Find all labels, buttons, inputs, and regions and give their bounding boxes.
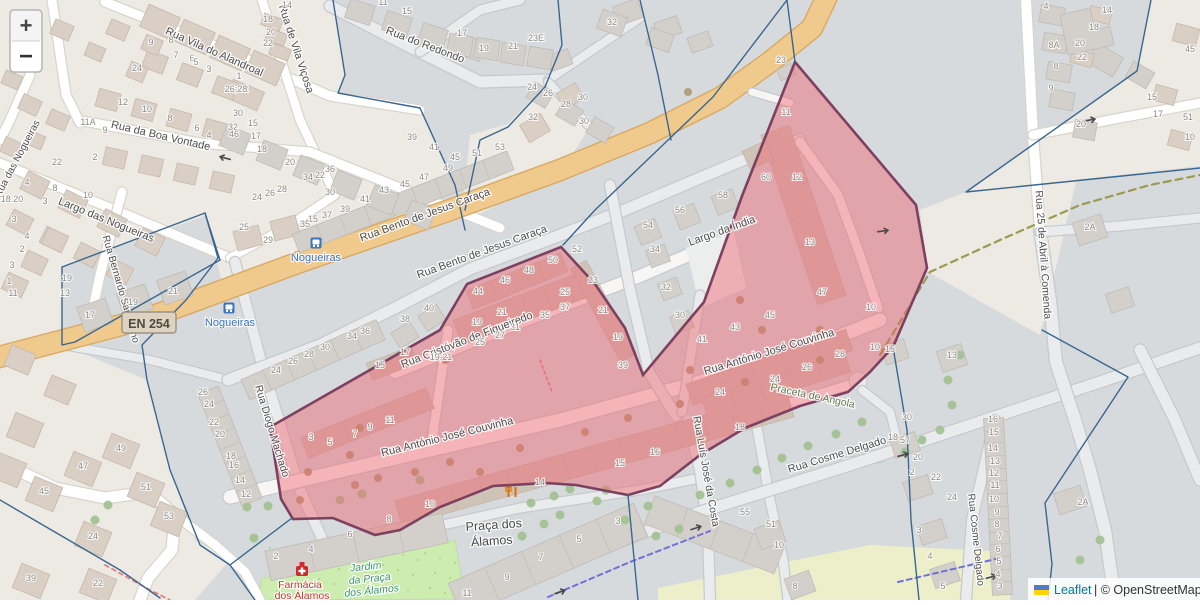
svg-text:43: 43: [730, 322, 740, 332]
svg-text:25: 25: [560, 287, 570, 297]
svg-text:22: 22: [52, 157, 62, 167]
svg-text:12: 12: [241, 489, 251, 499]
svg-text:15: 15: [885, 344, 895, 354]
svg-text:20: 20: [913, 452, 923, 462]
svg-text:7: 7: [997, 531, 1002, 541]
svg-text:3: 3: [9, 260, 14, 270]
svg-text:15: 15: [989, 427, 999, 437]
svg-text:6: 6: [194, 123, 199, 133]
svg-text:60: 60: [761, 172, 771, 182]
svg-text:36: 36: [360, 326, 370, 336]
svg-text:32: 32: [607, 17, 617, 27]
svg-text:8: 8: [994, 519, 999, 529]
svg-text:17: 17: [85, 310, 95, 320]
svg-text:24: 24: [770, 374, 780, 384]
svg-text:11: 11: [378, 0, 387, 7]
svg-text:14: 14: [1102, 5, 1112, 15]
svg-text:10: 10: [866, 302, 876, 312]
svg-text:26: 26: [288, 356, 298, 366]
svg-text:37: 37: [560, 302, 570, 312]
svg-text:57: 57: [900, 435, 910, 445]
svg-text:dos Álamos: dos Álamos: [275, 589, 330, 600]
svg-text:11: 11: [385, 415, 394, 425]
svg-text:51: 51: [472, 148, 482, 158]
svg-text:4: 4: [995, 569, 1000, 579]
svg-text:35: 35: [300, 219, 310, 229]
svg-text:41: 41: [429, 142, 439, 152]
svg-text:2: 2: [273, 551, 278, 561]
svg-text:11: 11: [8, 288, 17, 298]
svg-text:32: 32: [661, 282, 671, 292]
svg-text:17: 17: [457, 28, 467, 38]
svg-text:21: 21: [598, 305, 608, 315]
svg-text:43: 43: [379, 185, 389, 195]
svg-text:24: 24: [88, 531, 98, 541]
svg-text:41: 41: [697, 334, 707, 344]
svg-text:34: 34: [650, 244, 660, 254]
svg-text:21: 21: [168, 286, 178, 296]
svg-text:18: 18: [735, 422, 745, 432]
svg-text:3: 3: [615, 516, 620, 526]
svg-text:15: 15: [615, 458, 625, 468]
svg-text:5: 5: [193, 57, 198, 67]
svg-text:17: 17: [1153, 109, 1163, 119]
svg-text:2A: 2A: [1077, 497, 1088, 507]
svg-text:3: 3: [997, 581, 1002, 591]
svg-text:4: 4: [206, 130, 211, 140]
svg-text:47: 47: [817, 287, 827, 297]
svg-text:3: 3: [11, 214, 16, 224]
svg-text:8A: 8A: [1048, 40, 1059, 50]
svg-text:2: 2: [92, 152, 97, 162]
svg-text:53: 53: [495, 142, 505, 152]
svg-text:15: 15: [1147, 92, 1157, 102]
svg-text:47: 47: [78, 461, 88, 471]
svg-text:39: 39: [618, 360, 628, 370]
svg-text:35: 35: [540, 310, 550, 320]
svg-text:15: 15: [248, 118, 258, 128]
svg-text:18: 18: [263, 14, 273, 24]
svg-text:45: 45: [39, 486, 49, 496]
svg-text:2: 2: [19, 244, 24, 254]
svg-text:18: 18: [257, 144, 267, 154]
svg-text:34: 34: [303, 172, 313, 182]
svg-text:12: 12: [989, 468, 999, 478]
svg-text:2: 2: [909, 467, 914, 477]
svg-text:17: 17: [400, 347, 410, 357]
svg-text:50: 50: [548, 255, 558, 265]
svg-text:19: 19: [472, 317, 482, 327]
svg-text:4: 4: [1043, 1, 1048, 11]
svg-text:56: 56: [675, 205, 685, 215]
svg-text:48: 48: [524, 265, 534, 275]
svg-text:24: 24: [715, 387, 725, 397]
svg-text:19;21: 19;21: [430, 352, 453, 362]
svg-text:29: 29: [263, 235, 273, 245]
svg-text:Nogueiras: Nogueiras: [205, 317, 256, 329]
svg-text:11: 11: [781, 107, 790, 117]
svg-text:4: 4: [24, 231, 29, 241]
svg-text:8: 8: [386, 514, 391, 524]
svg-text:5: 5: [996, 556, 1001, 566]
svg-text:24: 24: [271, 365, 281, 375]
svg-text:11: 11: [462, 588, 471, 598]
svg-text:19: 19: [62, 273, 72, 283]
svg-text:46: 46: [500, 275, 510, 285]
svg-text:21: 21: [497, 307, 507, 317]
svg-text:21: 21: [508, 41, 518, 51]
svg-text:23: 23: [588, 275, 598, 285]
svg-text:19: 19: [128, 297, 138, 307]
svg-text:51: 51: [1183, 112, 1193, 122]
svg-text:19: 19: [613, 332, 623, 342]
svg-text:30: 30: [233, 108, 243, 118]
svg-text:22: 22: [931, 472, 941, 482]
svg-text:30: 30: [320, 342, 330, 352]
svg-text:Álamos: Álamos: [470, 532, 513, 550]
svg-text:4: 4: [927, 551, 932, 561]
svg-text:9: 9: [994, 507, 999, 517]
svg-text:13: 13: [60, 288, 70, 298]
svg-text:30: 30: [675, 310, 685, 320]
svg-text:52: 52: [572, 244, 582, 254]
svg-text:41: 41: [360, 194, 370, 204]
svg-text:10: 10: [142, 104, 152, 114]
svg-text:20: 20: [266, 27, 276, 37]
svg-text:49: 49: [443, 163, 453, 173]
svg-text:54: 54: [643, 220, 653, 230]
svg-text:30: 30: [578, 92, 588, 102]
svg-text:51: 51: [766, 519, 776, 529]
svg-text:EN 254: EN 254: [128, 317, 170, 331]
svg-text:46: 46: [229, 129, 239, 139]
svg-text:51: 51: [141, 482, 151, 492]
svg-text:27: 27: [495, 330, 505, 340]
svg-text:24: 24: [132, 63, 142, 73]
svg-text:45: 45: [450, 152, 460, 162]
svg-text:5: 5: [327, 437, 332, 447]
svg-text:37: 37: [322, 210, 332, 220]
svg-text:40: 40: [424, 303, 434, 313]
svg-text:45: 45: [400, 179, 410, 189]
svg-text:8: 8: [1053, 61, 1058, 71]
svg-text:36: 36: [325, 164, 335, 174]
svg-text:16: 16: [229, 460, 239, 470]
svg-text:22: 22: [315, 170, 325, 180]
svg-text:26;28: 26;28: [225, 84, 248, 94]
svg-text:12: 12: [792, 172, 802, 182]
svg-text:15: 15: [375, 360, 385, 370]
svg-text:30: 30: [902, 412, 912, 422]
svg-text:10: 10: [989, 494, 999, 504]
svg-text:12: 12: [118, 97, 128, 107]
svg-text:13: 13: [805, 237, 815, 247]
svg-text:1: 1: [236, 71, 241, 81]
svg-text:20: 20: [215, 429, 225, 439]
svg-text:10: 10: [774, 540, 784, 550]
svg-text:24: 24: [527, 82, 537, 92]
svg-text:7: 7: [173, 50, 178, 60]
svg-text:53: 53: [164, 511, 174, 521]
svg-text:8: 8: [168, 35, 173, 45]
svg-text:58: 58: [718, 190, 728, 200]
svg-text:13: 13: [947, 350, 957, 360]
svg-text:24: 24: [947, 492, 957, 502]
svg-text:14: 14: [535, 477, 545, 487]
svg-text:3: 3: [308, 432, 313, 442]
svg-text:14: 14: [282, 0, 292, 10]
svg-text:10: 10: [1185, 132, 1195, 142]
svg-text:7: 7: [538, 552, 543, 562]
svg-text:26: 26: [543, 88, 553, 98]
svg-text:24: 24: [204, 399, 214, 409]
svg-text:22: 22: [263, 38, 273, 48]
svg-text:49: 49: [116, 443, 126, 453]
svg-text:Nogueiras: Nogueiras: [291, 252, 342, 264]
svg-text:44: 44: [473, 286, 483, 296]
svg-text:26: 26: [265, 188, 275, 198]
svg-text:+: +: [20, 13, 33, 38]
svg-text:8: 8: [792, 581, 797, 591]
svg-text:9: 9: [367, 422, 372, 432]
svg-text:3: 3: [916, 525, 921, 535]
svg-text:19: 19: [479, 43, 489, 53]
svg-text:3: 3: [42, 196, 47, 206]
svg-text:38: 38: [400, 314, 410, 324]
svg-text:31: 31: [510, 322, 520, 332]
svg-text:28: 28: [277, 184, 287, 194]
svg-text:20: 20: [285, 157, 295, 167]
svg-text:45: 45: [765, 310, 775, 320]
svg-text:5: 5: [576, 534, 581, 544]
svg-text:Leaflet: Leaflet: [1054, 583, 1092, 597]
svg-text:9: 9: [148, 37, 153, 47]
svg-text:4: 4: [24, 177, 29, 187]
svg-text:6: 6: [995, 544, 1000, 554]
svg-text:−: −: [19, 43, 33, 70]
svg-text:23E: 23E: [528, 33, 544, 43]
svg-text:17: 17: [251, 131, 261, 141]
svg-text:22: 22: [93, 578, 103, 588]
svg-text:22: 22: [1077, 52, 1087, 62]
svg-text:16: 16: [650, 447, 660, 457]
svg-text:25: 25: [475, 337, 485, 347]
svg-text:18: 18: [888, 432, 898, 442]
svg-text:10: 10: [83, 190, 93, 200]
svg-text:20: 20: [1076, 119, 1086, 129]
svg-text:47: 47: [419, 172, 429, 182]
svg-text:8: 8: [52, 183, 57, 193]
svg-text:14: 14: [988, 443, 998, 453]
svg-text:39: 39: [407, 132, 417, 142]
svg-text:14: 14: [235, 475, 245, 485]
svg-text:28: 28: [561, 99, 571, 109]
svg-text:9: 9: [102, 125, 107, 135]
svg-text:20: 20: [1075, 38, 1085, 48]
svg-text:7: 7: [352, 429, 357, 439]
svg-text:30: 30: [325, 187, 335, 197]
svg-text:13: 13: [990, 456, 1000, 466]
svg-text:15: 15: [402, 6, 412, 16]
svg-text:22: 22: [209, 417, 219, 427]
svg-text:34: 34: [347, 331, 357, 341]
svg-text:23: 23: [776, 55, 786, 65]
svg-text:| © OpenStreetMap: | © OpenStreetMap: [1094, 583, 1200, 597]
svg-text:18: 18: [1089, 22, 1099, 32]
svg-text:26: 26: [802, 362, 812, 372]
svg-text:30: 30: [579, 116, 589, 126]
svg-text:45: 45: [1185, 44, 1195, 54]
svg-text:16: 16: [988, 414, 998, 424]
svg-text:11A: 11A: [80, 117, 95, 127]
svg-text:1: 1: [6, 276, 11, 286]
svg-text:10: 10: [870, 342, 880, 352]
svg-text:2A: 2A: [1084, 222, 1095, 232]
svg-text:28: 28: [835, 349, 845, 359]
svg-text:39: 39: [340, 204, 350, 214]
svg-text:55: 55: [740, 507, 750, 517]
svg-text:25: 25: [239, 222, 249, 232]
svg-text:32: 32: [528, 112, 538, 122]
svg-text:24: 24: [252, 192, 262, 202]
svg-text:18.20: 18.20: [1, 194, 24, 204]
svg-text:4: 4: [308, 544, 313, 554]
svg-text:9: 9: [1048, 83, 1053, 93]
svg-text:39: 39: [26, 573, 36, 583]
svg-text:9: 9: [504, 572, 509, 582]
svg-text:10: 10: [425, 499, 435, 509]
svg-text:11: 11: [990, 480, 999, 490]
svg-text:28: 28: [304, 349, 314, 359]
svg-text:5: 5: [940, 581, 945, 591]
svg-text:26: 26: [198, 387, 208, 397]
svg-text:3: 3: [206, 64, 211, 74]
svg-text:8: 8: [167, 113, 172, 123]
svg-text:6: 6: [347, 529, 352, 539]
